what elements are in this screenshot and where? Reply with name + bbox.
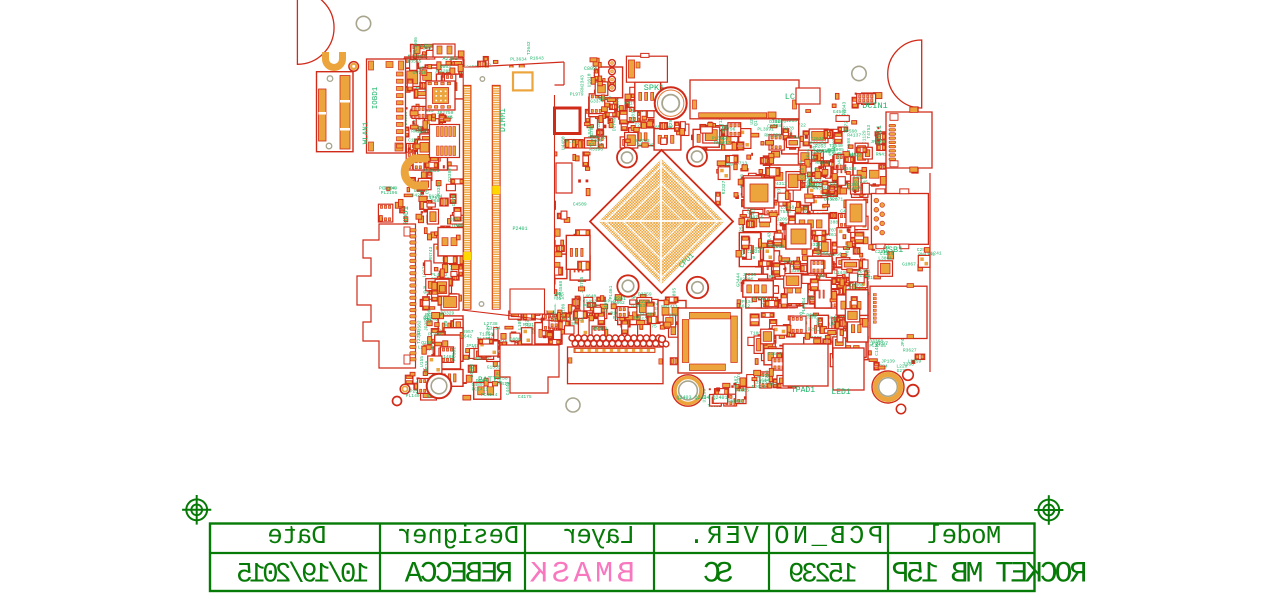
svg-text:RN1317: RN1317 (714, 140, 731, 146)
svg-text:Q2013: Q2013 (450, 216, 464, 222)
svg-text:G642: G642 (461, 334, 472, 340)
svg-text:C1688: C1688 (816, 317, 822, 331)
svg-text:R3627: R3627 (903, 347, 917, 353)
svg-text:BMASK: BMASK (526, 558, 635, 592)
svg-text:RN201: RN201 (592, 326, 607, 332)
svg-text:SC: SC (704, 558, 733, 592)
svg-text:DIMM1: DIMM1 (499, 108, 508, 132)
svg-text:JP2510: JP2510 (424, 314, 430, 331)
svg-text:Q3438: Q3438 (843, 166, 857, 172)
svg-text:Model: Model (928, 522, 1002, 551)
svg-text:C4175: C4175 (518, 394, 532, 400)
svg-text:R3396: R3396 (589, 146, 603, 152)
svg-text:JP2169: JP2169 (816, 148, 833, 154)
svg-text:D773: D773 (451, 195, 457, 206)
svg-text:JP555: JP555 (849, 152, 863, 158)
svg-text:PC4144: PC4144 (481, 392, 498, 398)
svg-text:REBECCA: REBECCA (405, 558, 513, 592)
svg-text:L3861: L3861 (878, 256, 892, 262)
svg-text:C3194: C3194 (487, 326, 501, 332)
svg-text:U863: U863 (440, 64, 451, 70)
svg-text:T543: T543 (780, 209, 791, 215)
svg-text:RN4222: RN4222 (807, 183, 824, 189)
svg-text:Layer: Layer (563, 522, 635, 551)
svg-text:R2327: R2327 (721, 180, 727, 194)
svg-text:R228: R228 (783, 126, 794, 132)
svg-text:D2749: D2749 (612, 117, 618, 131)
svg-text:C4436: C4436 (424, 360, 430, 374)
svg-text:PJP07: PJP07 (872, 340, 889, 347)
svg-text:U1113: U1113 (857, 273, 871, 279)
svg-text:PCB_NO: PCB_NO (771, 522, 883, 551)
svg-text:C1519: C1519 (768, 351, 782, 357)
svg-text:T4753: T4753 (866, 125, 872, 139)
svg-text:ROCKET MB 15P: ROCKET MB 15P (892, 558, 1087, 592)
svg-text:TPAD1: TPAD1 (791, 386, 815, 395)
svg-text:JP4568: JP4568 (558, 281, 564, 298)
svg-text:P2401: P2401 (512, 226, 527, 232)
svg-text:PL4501: PL4501 (751, 296, 769, 302)
svg-text:PC1606: PC1606 (413, 37, 419, 54)
svg-text:BATT1: BATT1 (478, 376, 502, 385)
svg-text:C4825: C4825 (845, 245, 851, 259)
svg-text:D2796: D2796 (722, 127, 736, 133)
svg-text:R4137: R4137 (847, 133, 861, 139)
svg-text:L844: L844 (587, 126, 593, 137)
svg-text:RN743: RN743 (428, 246, 434, 260)
svg-text:USB1: USB1 (883, 245, 903, 255)
svg-text:D400: D400 (591, 138, 602, 144)
svg-text:G1535: G1535 (487, 364, 501, 370)
svg-text:JP871: JP871 (829, 196, 843, 202)
svg-text:L4682: L4682 (469, 364, 475, 378)
svg-text:MINI1: MINI1 (876, 125, 883, 145)
svg-text:Q2101: Q2101 (421, 340, 435, 346)
svg-text:VER.: VER. (686, 522, 759, 551)
svg-text:JP3562: JP3562 (416, 320, 422, 337)
svg-text:T3598: T3598 (846, 138, 852, 152)
svg-text:L2759: L2759 (908, 359, 922, 365)
svg-text:G3444: G3444 (735, 273, 741, 287)
svg-text:D2620: D2620 (752, 384, 766, 390)
svg-text:U2053: U2053 (631, 303, 645, 309)
svg-text:PL2196: PL2196 (381, 190, 398, 196)
svg-text:PL3634: PL3634 (510, 56, 527, 62)
svg-text:15239: 15239 (790, 560, 858, 591)
svg-text:R3359: R3359 (436, 182, 442, 196)
svg-text:PC3454: PC3454 (810, 140, 827, 146)
svg-text:Q800: Q800 (510, 337, 521, 343)
svg-text:T3885: T3885 (735, 387, 749, 393)
svg-text:RN1063: RN1063 (728, 398, 745, 404)
svg-text:G1067: G1067 (902, 262, 916, 268)
svg-text:10/19/2015: 10/19/2015 (238, 560, 370, 591)
svg-text:L1446: L1446 (834, 270, 848, 276)
svg-text:RN817: RN817 (597, 96, 611, 102)
svg-text:LED1: LED1 (831, 388, 850, 397)
svg-text:C300: C300 (805, 315, 816, 321)
svg-text:Date: Date (268, 522, 327, 551)
svg-text:DCIN1: DCIN1 (862, 101, 888, 111)
svg-text:U4469: U4469 (603, 300, 609, 314)
svg-text:T772: T772 (843, 121, 849, 132)
svg-text:RN449: RN449 (815, 160, 829, 166)
svg-text:RN2343: RN2343 (580, 75, 586, 92)
svg-text:T2642: T2642 (526, 41, 532, 55)
svg-text:D3329: D3329 (441, 311, 455, 317)
svg-text:C818: C818 (800, 167, 806, 178)
svg-text:C573: C573 (767, 123, 778, 129)
svg-text:Designer: Designer (397, 522, 519, 551)
svg-text:D4356: D4356 (837, 152, 843, 166)
svg-text:C803: C803 (584, 66, 596, 72)
svg-text:IOBD1: IOBD1 (372, 86, 380, 109)
svg-text:C4509: C4509 (573, 201, 587, 207)
svg-text:R1643: R1643 (530, 56, 544, 62)
svg-text:PL1354: PL1354 (801, 297, 807, 314)
svg-text:PL979: PL979 (570, 91, 584, 97)
svg-text:R261: R261 (614, 296, 626, 302)
svg-text:HDD1: HDD1 (403, 206, 411, 225)
svg-text:Q2403 Q2404 Q2401: Q2403 Q2404 Q2401 (676, 395, 727, 401)
svg-text:A2201: A2201 (442, 56, 457, 62)
svg-text:WLAN1: WLAN1 (363, 121, 371, 144)
svg-text:PC1411: PC1411 (472, 386, 489, 392)
svg-text:RN1258: RN1258 (764, 133, 781, 139)
svg-text:R487: R487 (734, 376, 740, 387)
svg-text:PC3087: PC3087 (428, 332, 445, 338)
svg-text:D3359: D3359 (638, 292, 652, 298)
svg-text:U4480: U4480 (560, 136, 566, 150)
svg-text:U4735: U4735 (750, 215, 764, 221)
svg-text:PL3217: PL3217 (567, 317, 584, 323)
svg-text:JP4109: JP4109 (561, 303, 567, 320)
svg-text:PC581: PC581 (451, 347, 457, 361)
svg-text:L4150: L4150 (420, 43, 434, 49)
